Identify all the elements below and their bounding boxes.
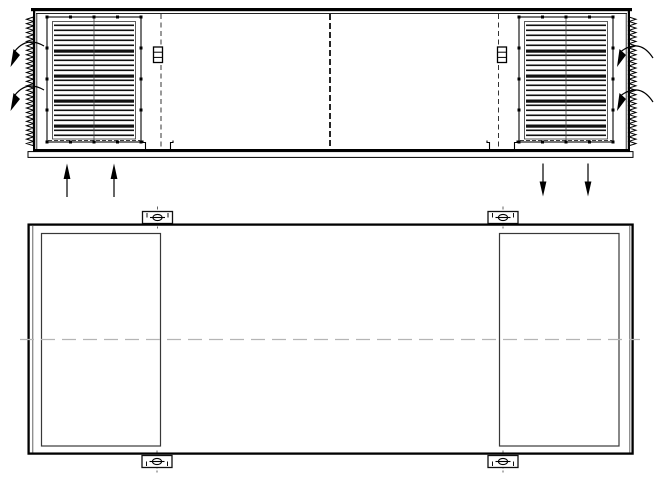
louver-left-fastener-dot xyxy=(46,78,49,81)
louver-panel-left xyxy=(46,16,143,144)
arrowhead-down-icon xyxy=(11,93,21,111)
louver-left-fastener-dot xyxy=(46,141,49,144)
drawing-canvas xyxy=(0,0,660,483)
louver-left-fastener-dot xyxy=(140,109,143,112)
louver-left-fastener-dot xyxy=(140,47,143,50)
plan-casing-outline xyxy=(29,225,633,454)
louver-right-fastener-dot xyxy=(518,16,521,19)
louver-right-fastener-dot xyxy=(612,78,615,81)
louver-right-fastener-dot xyxy=(518,141,521,144)
access-panel-right xyxy=(500,234,620,447)
arrowhead-down-icon xyxy=(11,49,21,67)
louver-panel-right xyxy=(518,16,615,144)
base-rail xyxy=(28,152,633,158)
louver-right-fastener-dot xyxy=(588,141,591,144)
louver-right-fastener-dot xyxy=(518,109,521,112)
gasket-strip-left xyxy=(27,17,34,146)
louver-right-fastener-dot xyxy=(518,47,521,50)
gasket-right-teeth xyxy=(629,17,636,146)
louver-right-fastener-dot xyxy=(612,141,615,144)
plan-view xyxy=(20,207,640,473)
arrowhead-down-icon xyxy=(585,182,592,197)
louver-left-fastener-dot xyxy=(116,16,119,19)
technical-drawing xyxy=(0,0,660,483)
gasket-strip-right xyxy=(629,17,636,146)
hinge-block-left xyxy=(154,47,163,63)
intake-arrow-up-2 xyxy=(111,164,118,198)
louver-left-fastener-dot xyxy=(69,16,72,19)
louver-right-fastener-dot xyxy=(518,78,521,81)
elevation-view xyxy=(11,8,654,197)
louver-left-fastener-dot xyxy=(46,16,49,19)
elevation-bottom-edge xyxy=(33,149,630,151)
hinge-block-right xyxy=(498,47,507,63)
arrowhead-up-icon xyxy=(111,164,118,180)
louver-left-fastener-dot xyxy=(93,141,96,144)
louver-left-fastener-dot xyxy=(140,141,143,144)
louver-left-fastener-dot xyxy=(140,78,143,81)
louver-right-fastener-dot xyxy=(612,47,615,50)
arrowhead-down-icon xyxy=(617,49,626,67)
louver-right-fastener-dot xyxy=(541,141,544,144)
louver-right-fastener-dot xyxy=(588,16,591,19)
discharge-arrow-down-2 xyxy=(585,164,592,197)
access-panel-left xyxy=(42,234,161,447)
louver-left-fastener-dot xyxy=(93,16,96,19)
louver-left-fastener-dot xyxy=(46,109,49,112)
intake-arrow-up-1 xyxy=(64,164,71,198)
arrowhead-down-icon xyxy=(617,93,626,111)
discharge-arrow-down-1 xyxy=(540,164,547,197)
louver-right-fastener-dot xyxy=(612,109,615,112)
louver-left-fastener-dot xyxy=(116,141,119,144)
louver-right-fastener-dot xyxy=(612,16,615,19)
elevation-top-edge xyxy=(31,8,632,11)
louver-left-fastener-dot xyxy=(46,47,49,50)
gasket-left-teeth xyxy=(27,17,34,146)
louver-right-fastener-dot xyxy=(565,141,568,144)
louver-left-fastener-dot xyxy=(69,141,72,144)
arrowhead-up-icon xyxy=(64,164,71,180)
louver-left-fastener-dot xyxy=(140,16,143,19)
louver-right-fastener-dot xyxy=(565,16,568,19)
louver-right-fastener-dot xyxy=(541,16,544,19)
arrowhead-down-icon xyxy=(540,182,547,197)
